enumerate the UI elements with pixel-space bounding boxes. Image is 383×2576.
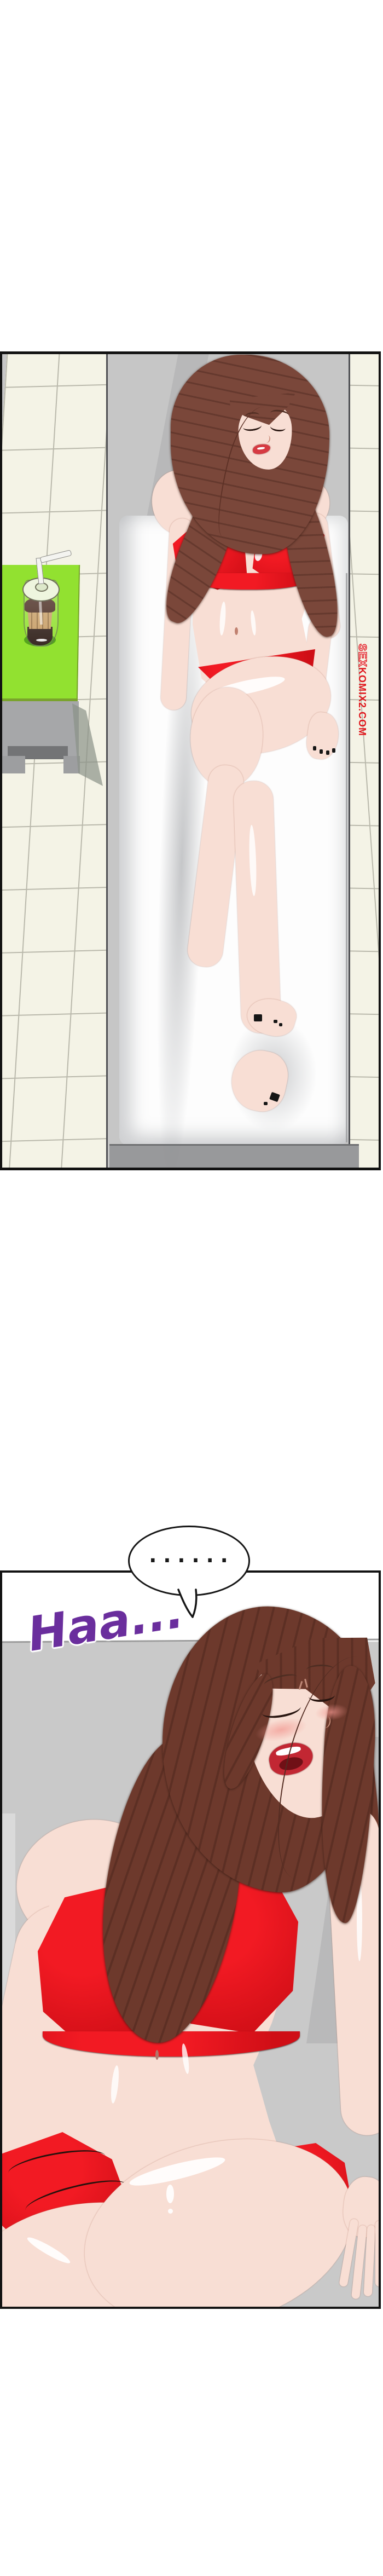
watermark-sex: SEX <box>356 644 368 667</box>
finger <box>375 2221 381 2286</box>
fingernail <box>326 750 329 755</box>
panel-1: SEXKOMIX2.COM <box>0 351 381 1170</box>
bench-front <box>109 1144 359 1170</box>
knee-drip-dot <box>168 2209 173 2214</box>
knee-drip-highlight <box>166 2185 174 2203</box>
webtoon-page: SEXKOMIX2.COM ...... Haa... <box>0 0 383 2576</box>
side-table-leg-left <box>1 756 25 773</box>
watermark-rest: KOMIX2.COM <box>357 667 368 736</box>
toenail <box>254 1014 262 1021</box>
speech-bubble-text: ...... <box>130 1543 248 1568</box>
tile-boundary-left <box>106 354 108 1168</box>
toenail <box>279 1023 282 1026</box>
tile-pattern <box>350 354 379 1168</box>
toenail <box>274 1020 277 1023</box>
fingernail <box>313 746 316 750</box>
navel <box>235 627 238 635</box>
watermark-text: SEXKOMIX2.COM <box>356 644 368 759</box>
tile-boundary-right <box>349 354 350 1168</box>
panel-2 <box>0 1570 381 2309</box>
fingernail <box>332 748 335 753</box>
tile-floor-right <box>350 354 379 1168</box>
toenail <box>264 1102 268 1105</box>
mat-edge-line <box>346 573 347 1142</box>
navel <box>155 2050 159 2060</box>
fingernail <box>320 749 323 754</box>
